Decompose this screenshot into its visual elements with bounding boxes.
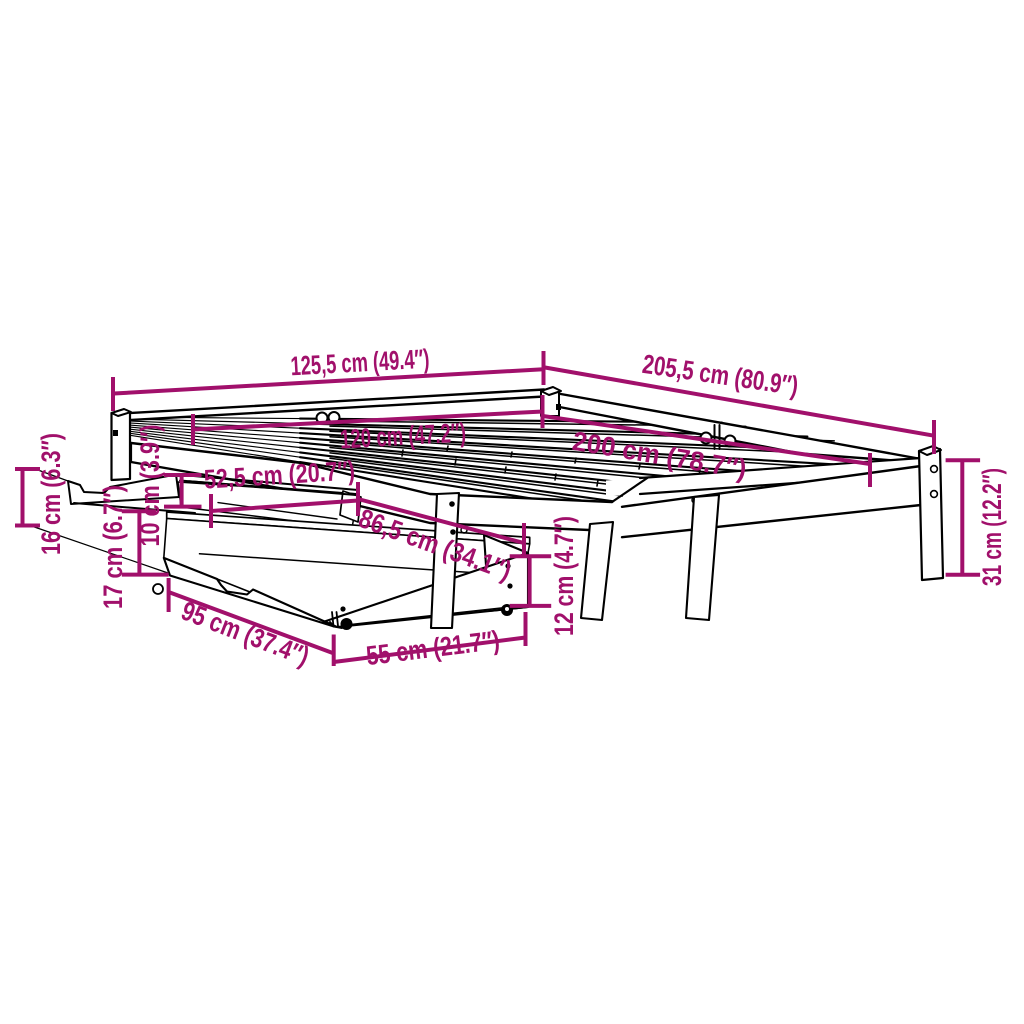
svg-text:10 cm (3.9″): 10 cm (3.9″)	[135, 425, 165, 547]
svg-text:31 cm (12.2″): 31 cm (12.2″)	[977, 468, 1007, 586]
svg-text:17 cm (6.7″): 17 cm (6.7″)	[98, 485, 128, 609]
svg-text:12 cm (4.7″): 12 cm (4.7″)	[549, 516, 579, 636]
svg-text:16 cm (6.3″): 16 cm (6.3″)	[36, 433, 66, 555]
